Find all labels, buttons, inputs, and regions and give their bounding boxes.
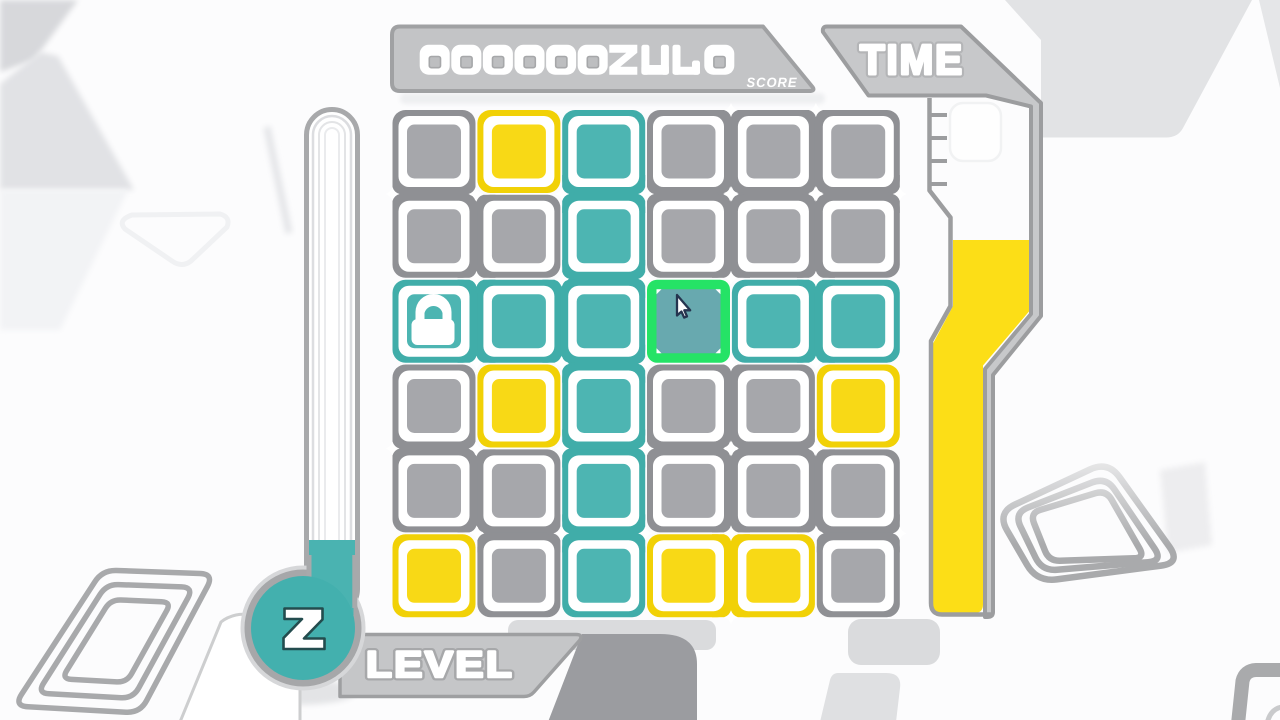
svg-text:TIME: TIME	[860, 36, 964, 83]
svg-text:SCORE: SCORE	[747, 75, 798, 90]
svg-text:LEVEL: LEVEL	[366, 644, 514, 685]
